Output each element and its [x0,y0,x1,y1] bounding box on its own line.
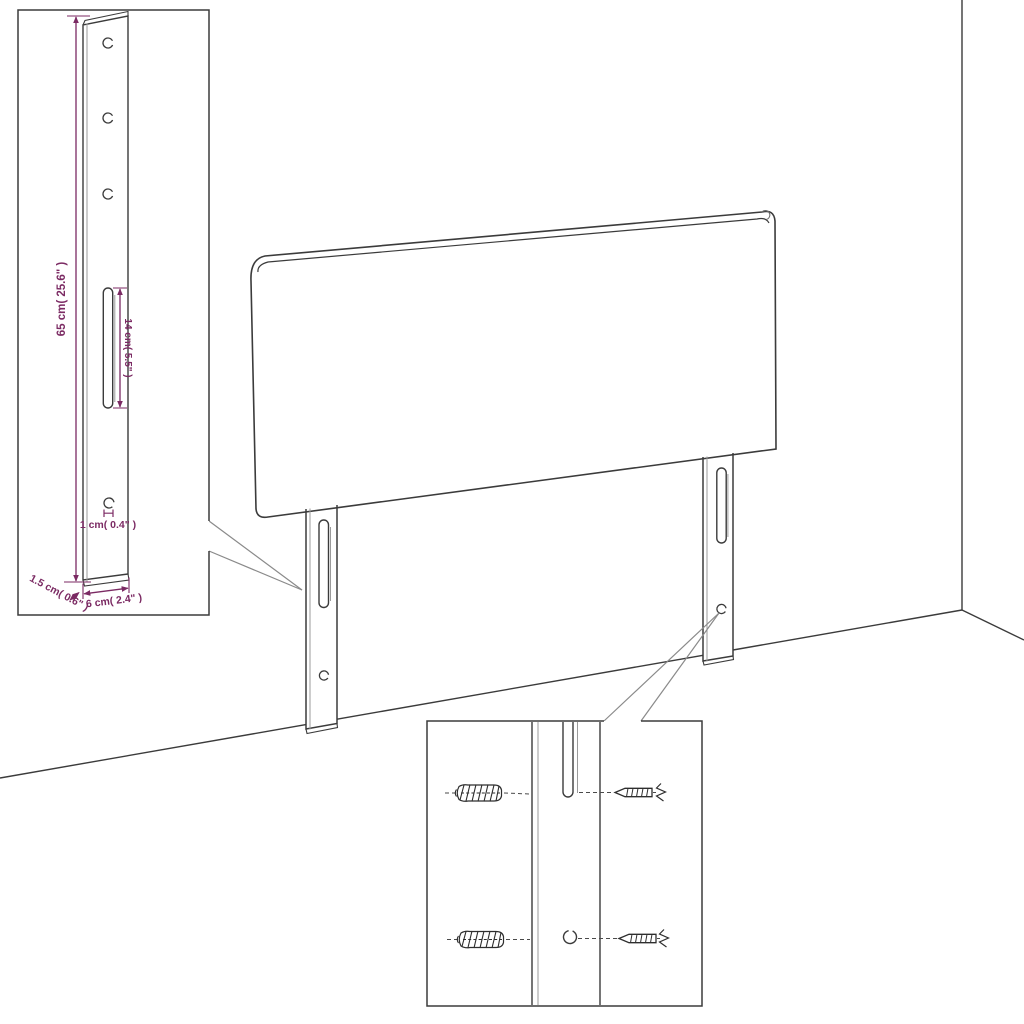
headboard-leg-right [703,453,734,665]
leg-left-slot [319,520,329,608]
headboard-leg-left [306,505,338,734]
leg-left-hole [318,669,331,682]
diagram-svg: 65 cm( 25.6" ) 14 cm( 5.5" ) 1 cm( 0.4" … [0,0,1024,1024]
panel-outline [251,211,776,517]
dimension-label-bottom-hole: 1 cm( 0.4" ) [80,519,136,531]
leg-right-slot [717,468,726,543]
dimension-label-leg-height: 65 cm( 25.6" ) [56,262,68,337]
headboard-panel [251,211,776,518]
inset-bottom-box [427,721,702,1006]
callout-leaders-right [604,613,719,721]
leg-left-outline [306,505,337,729]
floor-line-right [962,610,1024,640]
leg-right-hole [715,603,728,616]
callout-leaders-left [209,521,302,590]
dimension-label-slot-length: 14 cm( 5.5" ) [122,318,133,377]
assembly-diagram: 65 cm( 25.6" ) 14 cm( 5.5" ) 1 cm( 0.4" … [0,0,1024,1024]
panel-top-inner-edge [258,219,769,273]
